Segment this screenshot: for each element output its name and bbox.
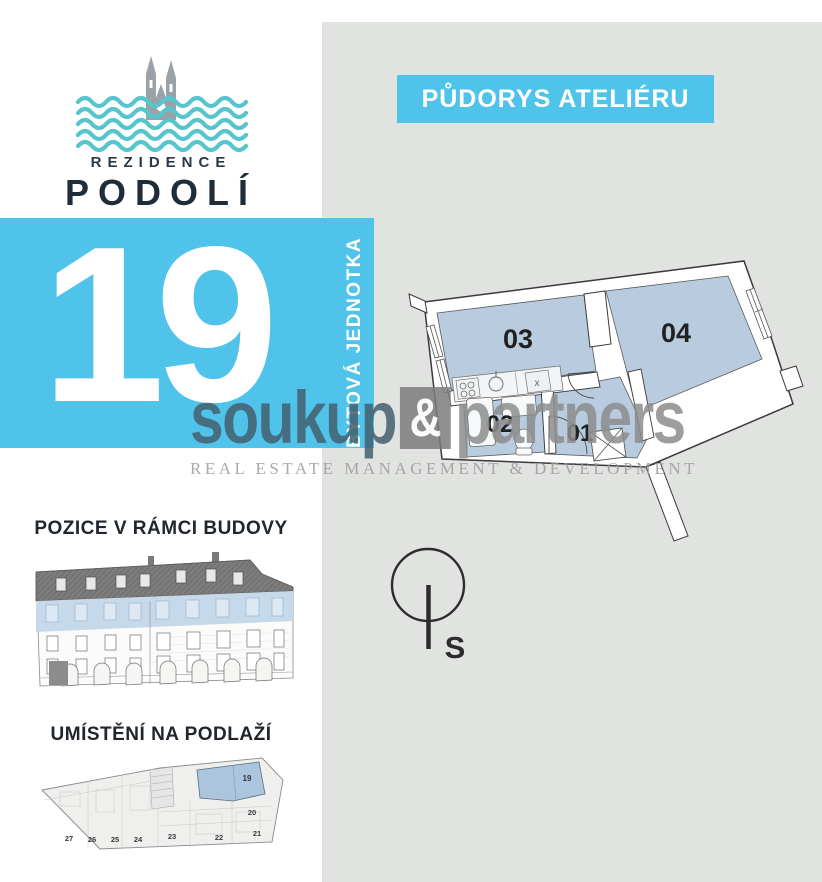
section-title-position: POZICE V RÁMCI BUDOVY [0,518,322,540]
chimney-icon [148,556,154,565]
section-title-floor-location: UMÍSTĚNÍ NA PODLAŽÍ [0,724,322,746]
room-label-03: 03 [503,324,533,354]
compass-north-label: S [445,630,466,665]
north-compass: S [385,545,480,670]
room-label-01: 01 [567,420,594,447]
room-label-02: 02 [487,411,514,438]
staircase-icon [150,767,174,809]
brand-name-rezidence: REZIDENCE [0,154,322,171]
unit-number-box: 19 BYTOVÁ JEDNOTKA [0,218,374,448]
shaft-x [590,428,626,461]
page: REZIDENCE PODOLÍ PŮDORYS ATELIÉRU 19 BYT… [0,0,822,882]
floor-location-map: 19 27 26 25 24 23 22 21 20 [35,752,295,857]
floor-map-unit-label: 26 [88,835,96,844]
room-label-04: 04 [661,318,691,348]
floor-map-unit-label: 22 [215,833,223,842]
floor-map-unit-label: 20 [248,808,256,817]
garage-door-icon [49,661,68,685]
chimney-icon [212,552,219,562]
unit-type-label: BYTOVÁ JEDNOTKA [344,218,366,448]
wall-stub [409,294,427,313]
building-elevation-drawing [22,552,307,692]
wall-stub [646,462,688,541]
floor-map-unit-label: 24 [134,835,143,844]
floor-plan-drawing: x [398,250,810,550]
unit-number: 19 [30,196,280,454]
floor-map-unit-19-label: 19 [243,774,252,783]
floor-map-unit-label: 21 [253,829,261,838]
floor-map-unit-label: 25 [111,835,119,844]
shaft-mark: x [535,378,540,389]
page-title-band: PŮDORYS ATELIÉRU [397,75,714,123]
floor-map-unit-label: 23 [168,832,176,841]
floor-map-unit-label: 27 [65,834,73,843]
page-title: PŮDORYS ATELIÉRU [422,85,690,114]
brand-logo-icon [0,22,322,152]
